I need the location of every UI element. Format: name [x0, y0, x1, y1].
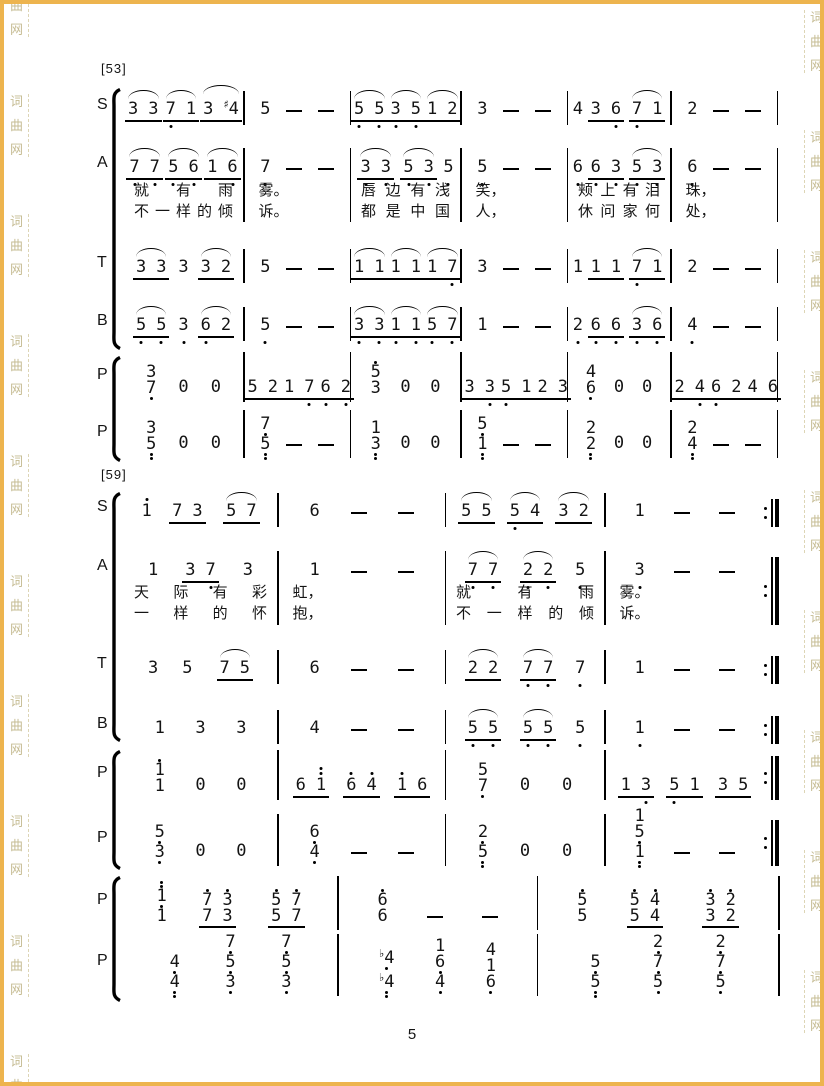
note: 1: [207, 158, 217, 177]
thick-barline: [775, 499, 779, 527]
chord: 66: [377, 888, 387, 927]
note: 4: [748, 378, 758, 397]
watermark-char: 词: [10, 814, 23, 829]
rest: 0: [178, 378, 188, 400]
dash: [351, 852, 367, 854]
note: ♭4: [379, 970, 394, 990]
octave-dot-row: [264, 456, 267, 460]
watermark-char: 曲: [810, 634, 823, 649]
octave-dots-above: [320, 767, 323, 775]
measure: 335123: [462, 378, 567, 400]
lyric-syllable: 国: [435, 202, 450, 221]
beam-group: 24: [672, 378, 709, 400]
beam-group: 52: [245, 378, 282, 400]
octave-dots-below: [264, 341, 267, 344]
part-label-A: A: [97, 557, 108, 575]
note: 5: [653, 974, 663, 990]
note: 3: [243, 561, 253, 583]
note: 1: [477, 316, 487, 338]
note: 3: [178, 258, 188, 280]
beam-group: 51: [666, 776, 703, 798]
watermark-char: 词: [810, 490, 823, 505]
note: 4: [573, 100, 583, 122]
beam-group: 51: [498, 378, 535, 400]
notation-row-B: 5536253311571266364: [124, 310, 778, 338]
repeat-sign: [764, 716, 780, 744]
watermark-column: 词曲网: [804, 730, 823, 793]
note: 3: [155, 844, 165, 860]
barline: [778, 934, 780, 996]
notation-row-T: 3333251111173111712: [124, 252, 778, 280]
note: 1: [634, 719, 644, 741]
barline: [777, 307, 779, 341]
measure: 3: [462, 258, 567, 280]
dash: [535, 168, 551, 170]
beam-group: 77: [126, 158, 163, 180]
watermark-char: 网: [10, 502, 23, 517]
note: 1: [316, 776, 326, 795]
notation-row-P: 44753753♭4♭416441655275275: [124, 932, 780, 994]
octave-dot: [635, 283, 638, 286]
rehearsal-mark: [59]: [101, 467, 127, 482]
part-label-B: B: [97, 312, 108, 330]
lyric-line: 不一样的倾诉。都是中国人，休问家何处，: [124, 201, 777, 221]
chord: 33: [222, 888, 232, 924]
lyric-syllable: 休: [578, 202, 593, 221]
measure: 75: [245, 416, 350, 456]
dash: [398, 729, 414, 731]
beam-group: 23: [535, 378, 572, 400]
repeat-sign: [764, 656, 780, 684]
beam-group: 17: [281, 378, 318, 400]
octave-dots-below: [204, 341, 207, 344]
beam-group: 55: [133, 316, 170, 338]
measure: 3700: [124, 364, 243, 400]
notation-row-S: 1735765554321: [124, 496, 779, 524]
dash: [745, 326, 761, 328]
note: 3: [371, 436, 381, 452]
measure: 66: [339, 888, 537, 928]
watermark-column: 词曲网: [804, 370, 823, 433]
beam-group: 33: [133, 258, 170, 280]
dash: [719, 512, 735, 514]
beam-group: 62: [708, 378, 745, 400]
note: 1: [652, 100, 662, 119]
repeat-dot: [764, 724, 767, 727]
octave-dots-below: [324, 403, 327, 406]
thick-barline: [775, 656, 779, 684]
note: 5: [168, 158, 178, 177]
measure: 1177335577: [124, 880, 337, 928]
note: 2: [221, 258, 231, 277]
measure: 处，: [672, 202, 777, 221]
beam-group: 17: [424, 258, 461, 280]
measure: 1373: [124, 561, 277, 583]
note: 5: [281, 954, 291, 970]
measure: 6: [672, 158, 777, 180]
barline: [777, 249, 779, 283]
beam-group: 22: [465, 659, 502, 681]
watermark-char: 词: [10, 94, 23, 109]
note: 4: [530, 502, 540, 521]
note: 6: [227, 158, 237, 177]
note: 5: [403, 158, 413, 177]
octave-dot: [308, 403, 311, 406]
measure: 11171: [568, 258, 670, 280]
octave-dot: [715, 403, 718, 406]
measure: 不一样的倾: [446, 604, 604, 623]
rest: 0: [430, 378, 440, 400]
octave-dot: [150, 457, 153, 460]
note: 2: [586, 436, 596, 452]
note: 5: [260, 316, 270, 338]
lyric-syllable: 笑，: [476, 181, 506, 200]
chord: 33: [705, 888, 715, 924]
watermark-char: 曲: [810, 394, 823, 409]
octave-dot: [324, 403, 327, 406]
note: 1: [411, 316, 421, 335]
lyric-syllable: 彩: [252, 583, 267, 602]
note: 2: [523, 561, 533, 580]
note: 7: [202, 908, 212, 924]
lyric-syllable: 诉。: [259, 202, 289, 221]
note: 5: [271, 908, 281, 924]
octave-dots-below: [635, 341, 638, 344]
note: 5: [225, 954, 235, 970]
octave-dots-below: [505, 403, 508, 406]
note: 4: [687, 436, 697, 452]
dash: [398, 669, 414, 671]
note: 3: [718, 776, 728, 795]
octave-dot: [635, 341, 638, 344]
watermark-char: 曲: [810, 274, 823, 289]
repeat-dot: [764, 516, 767, 519]
measure: 不一样的倾: [124, 202, 243, 221]
lyric-syllable: 有: [213, 583, 228, 602]
lyric-syllable: 人，: [476, 202, 506, 221]
dash: [398, 852, 414, 854]
note: 5: [248, 378, 258, 397]
octave-dots-below: [635, 283, 638, 286]
note: 7: [166, 100, 176, 119]
chord: 77: [202, 888, 212, 924]
note: 5: [669, 776, 679, 795]
beam-group: 55: [458, 502, 495, 524]
dash: [745, 110, 761, 112]
dash: [503, 326, 519, 328]
measure: 77225: [446, 561, 604, 583]
beam-group: 12: [424, 100, 461, 122]
measure: 3500: [124, 420, 243, 456]
octave-dots-below: [579, 684, 582, 687]
dash: [286, 444, 302, 446]
part-label-T: T: [97, 254, 107, 272]
note: 2: [579, 502, 589, 521]
beam-group: 3322: [702, 888, 739, 928]
note: 3: [424, 158, 434, 177]
dash: [503, 444, 519, 446]
chord: 22: [586, 420, 596, 463]
dash: [398, 512, 414, 514]
note: 1: [411, 258, 421, 277]
dash: [674, 669, 690, 671]
rest: 0: [614, 378, 624, 400]
octave-dot: [358, 125, 361, 128]
octave-dot: [594, 341, 597, 344]
watermark-column: 词曲网: [10, 0, 29, 37]
watermark-column: 词曲网: [10, 454, 29, 517]
dash: [318, 110, 334, 112]
note: 5: [260, 100, 270, 122]
measure: 55275275: [538, 934, 778, 994]
watermark-char: 词: [810, 610, 823, 625]
note: 7: [304, 378, 314, 397]
measure: 人，: [462, 202, 567, 221]
barline: [777, 91, 779, 125]
dash: [286, 268, 302, 270]
dash: [719, 729, 735, 731]
note: 1: [155, 719, 165, 741]
note: 7: [291, 908, 301, 924]
measure: 1300: [351, 420, 460, 456]
octave-dot: [169, 125, 172, 128]
octave-dot: [594, 995, 597, 998]
lyric-syllable: 际: [173, 583, 188, 602]
octave-dots-below: [414, 125, 417, 128]
beam-group: 62: [198, 316, 235, 338]
octave-dots-above: [401, 772, 404, 775]
note: 6: [591, 158, 601, 177]
note: 7: [260, 416, 270, 432]
dash: [674, 729, 690, 731]
dash: [535, 268, 551, 270]
measure: 5555443322: [538, 888, 778, 928]
beam-group: 73: [169, 502, 206, 524]
lyric-syllable: 的: [197, 202, 212, 221]
note: 1: [521, 378, 531, 397]
note: 5: [575, 719, 585, 741]
beam-group: 33: [125, 100, 162, 122]
note: 6: [768, 378, 778, 397]
measure: 17357: [124, 502, 277, 524]
measure: 唇边有浅: [351, 181, 460, 200]
watermark-column: 词曲网: [804, 850, 823, 913]
lyric-syllable: 泪: [645, 181, 660, 200]
measure: 4600: [568, 364, 670, 400]
note: 3: [360, 158, 370, 177]
measure: 都是中国: [351, 202, 460, 221]
repeat-dot: [764, 772, 767, 775]
measure: 151: [606, 808, 764, 864]
note: 5: [478, 844, 488, 860]
watermark-char: 词: [10, 1054, 23, 1069]
note: 6: [321, 378, 331, 397]
octave-dot: [394, 341, 397, 344]
lyric-syllable: 上: [600, 181, 615, 200]
measure: 笑，: [462, 181, 567, 200]
note: 2: [675, 378, 685, 397]
dash: [318, 168, 334, 170]
octave-dot: [264, 341, 267, 344]
octave-dot: [635, 125, 638, 128]
note: 5: [461, 502, 471, 521]
rest: 0: [400, 378, 410, 400]
dash: [286, 110, 302, 112]
note: 7: [575, 659, 585, 681]
repeat-dots: [764, 724, 767, 736]
watermark-char: 曲: [10, 1078, 23, 1086]
dash: [286, 168, 302, 170]
octave-dot: [374, 457, 377, 460]
repeat-dot: [764, 733, 767, 736]
note: 5: [443, 158, 453, 180]
lyric-syllable: 雨: [218, 181, 233, 200]
dash: [427, 916, 443, 918]
octave-dot: [615, 341, 618, 344]
octave-dot: [160, 341, 163, 344]
rest: 0: [642, 434, 652, 456]
octave-dot: [182, 341, 185, 344]
measure: 3: [606, 561, 764, 583]
lyric-syllable: 一: [487, 604, 502, 623]
octave-dot: [513, 527, 516, 530]
octave-dots-below: [160, 341, 163, 344]
note: 3: [591, 100, 601, 119]
lyric-syllable: 就: [456, 583, 471, 602]
note: 1: [611, 258, 621, 277]
measure: 3575: [124, 659, 277, 681]
octave-dot: [451, 341, 454, 344]
octave-dot: [576, 341, 579, 344]
measure: 5: [462, 158, 567, 180]
dash: [535, 326, 551, 328]
watermark-char: 曲: [10, 958, 23, 973]
lyric-syllable: 倾: [579, 604, 594, 623]
note: 5: [575, 561, 585, 583]
watermark-char: 词: [810, 250, 823, 265]
watermark-column: 词曲网: [804, 970, 823, 1033]
note: 1: [284, 378, 294, 397]
note: 4: [650, 908, 660, 924]
note: 3: [148, 659, 158, 681]
octave-dot: [140, 341, 143, 344]
watermark-column: 词曲网: [10, 334, 29, 397]
notation-row-A: 13731772253: [124, 555, 779, 583]
chord: 55: [630, 888, 640, 924]
watermark-column: 词曲网: [804, 610, 823, 673]
watermark-char: 曲: [810, 754, 823, 769]
chord: 53: [155, 824, 165, 867]
note: 7: [653, 954, 663, 970]
note: 3: [371, 380, 381, 396]
chord: 25: [478, 824, 488, 871]
note: 4: [687, 316, 697, 338]
octave-dot: [394, 125, 397, 128]
note: 1: [148, 561, 158, 583]
note: 5: [411, 100, 421, 119]
octave-dots-below: [698, 403, 701, 406]
octave-dot: [320, 772, 323, 775]
dash: [745, 168, 761, 170]
octave-dot: [385, 995, 388, 998]
dash: [535, 444, 551, 446]
dash: [503, 110, 519, 112]
chord: 416: [486, 942, 496, 997]
octave-dots-below: [471, 744, 474, 747]
measure: 6: [279, 659, 445, 681]
notation-row-P: 11006164165700135135: [124, 752, 779, 798]
octave-dots-below: [527, 684, 530, 687]
lyric-syllable: 不: [456, 604, 471, 623]
watermark-char: 曲: [10, 358, 23, 373]
octave-dot: [589, 457, 592, 460]
chord: 57: [478, 762, 488, 801]
measure: 553512: [351, 100, 460, 122]
watermark-char: 词: [810, 970, 823, 985]
note: 7: [225, 934, 235, 950]
rest: 0: [236, 842, 246, 864]
watermark-column: 词曲网: [804, 10, 823, 73]
lyric-syllable: 浅: [435, 181, 450, 200]
rehearsal-mark: [53]: [101, 61, 127, 76]
measure: 4: [672, 316, 777, 338]
beam-group: 33: [462, 378, 499, 400]
octave-dots-below: [308, 403, 311, 406]
measure: 26636: [568, 316, 670, 338]
notation-row-S: 33713♯455535123436712: [124, 94, 778, 122]
note: 3: [632, 316, 642, 335]
measure: 44753753: [124, 934, 337, 994]
dash: [674, 852, 690, 854]
measure: 1100: [124, 758, 277, 798]
dash: [713, 268, 729, 270]
beam-group: 71: [629, 258, 666, 280]
note: 1: [652, 258, 662, 277]
chord: 37: [146, 364, 156, 403]
measure: 天际有彩: [124, 583, 277, 602]
note: 1: [634, 844, 644, 860]
notation-row-T: 35756227771: [124, 653, 779, 681]
note: 3: [485, 378, 495, 397]
octave-dots-below: [492, 744, 495, 747]
chord: 44: [650, 888, 660, 924]
repeat-dots: [764, 507, 767, 519]
note: 6: [652, 316, 662, 335]
note: 3: [374, 316, 384, 335]
rest: 0: [195, 842, 205, 864]
rest: 0: [236, 776, 246, 798]
note: 4: [367, 776, 377, 795]
notation-row-A: 7756167335355663536: [124, 152, 778, 180]
octave-dots-below: [414, 341, 417, 344]
dash: [745, 444, 761, 446]
octave-dots-below: [615, 125, 618, 128]
watermark-char: 网: [10, 622, 23, 637]
beam-group: 57: [424, 316, 461, 338]
dash: [351, 512, 367, 514]
note: 7: [146, 380, 156, 396]
dash: [351, 669, 367, 671]
beam-group: 66: [588, 316, 625, 338]
note: ♯4: [223, 95, 239, 119]
note: 7: [172, 502, 182, 521]
note: 5: [543, 719, 553, 738]
chord: 275: [715, 934, 725, 997]
lyric-syllable: 有: [176, 181, 191, 200]
octave-dot: [401, 772, 404, 775]
rest: 0: [211, 378, 221, 400]
octave-dot: [579, 744, 582, 747]
